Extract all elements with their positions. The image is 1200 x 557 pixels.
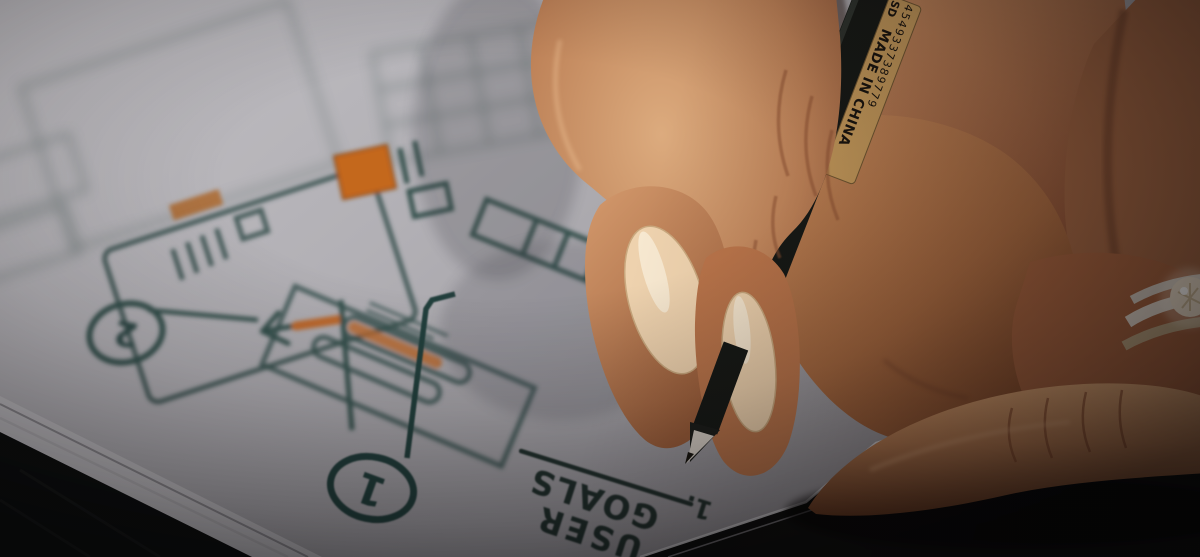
diamond-sparkle xyxy=(1180,287,1188,295)
photo-hand-sketching-wireframes: 2 1 USER GOALS 1. xyxy=(0,0,1200,557)
photo-canvas: 2 1 USER GOALS 1. xyxy=(0,0,1200,557)
